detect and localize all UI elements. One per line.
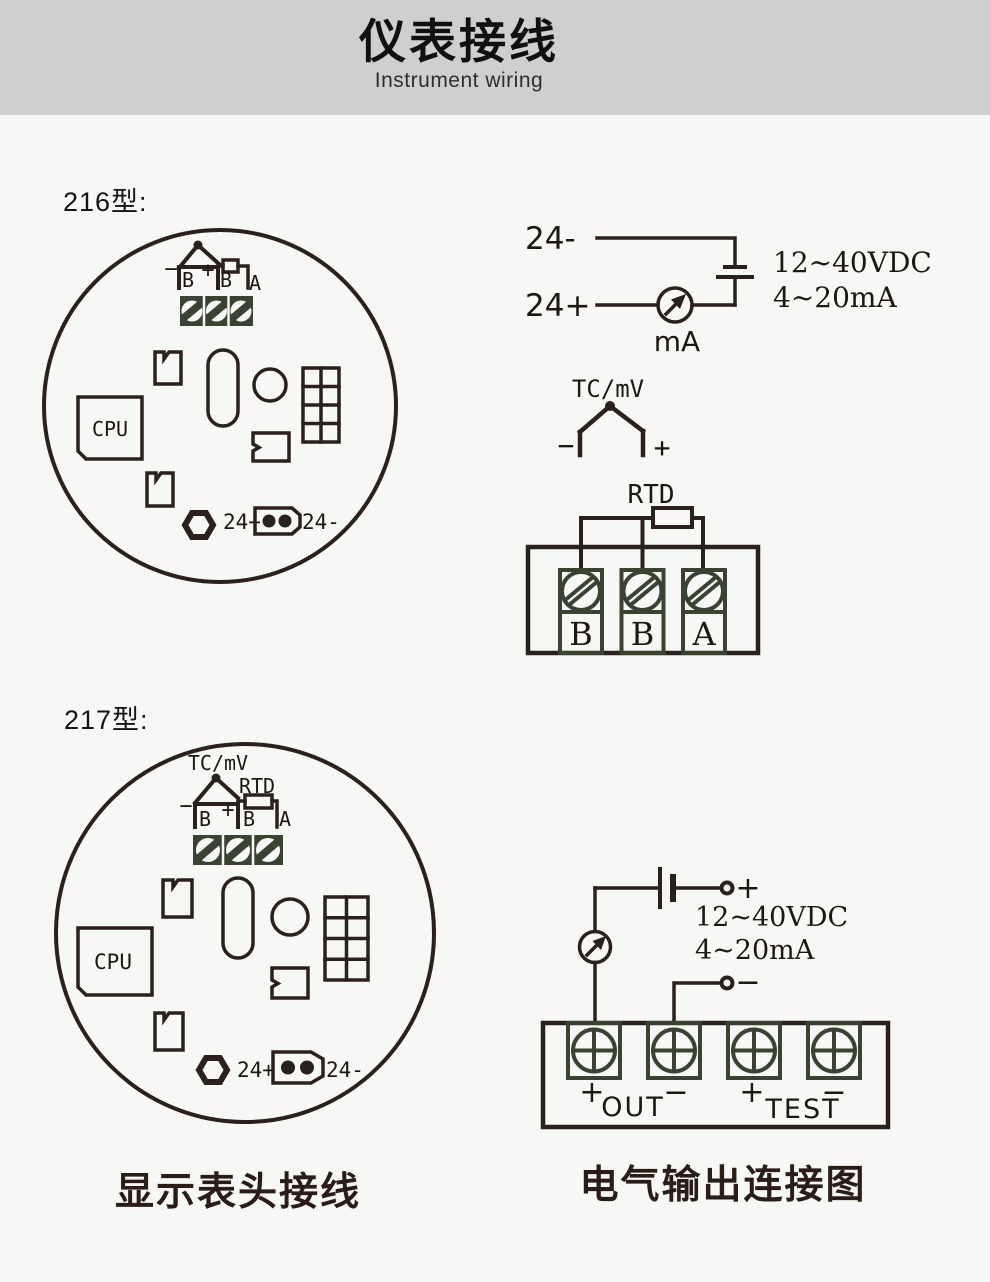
tc-label: TC/mV	[572, 375, 644, 403]
output-screw-terminals	[568, 1023, 860, 1078]
board-216-components: CPU	[78, 350, 339, 537]
board-217-terminal-b1: B	[199, 807, 211, 831]
instrument-wiring-sheet: 仪表接线 Instrument wiring 216型: 217型: − B +…	[0, 0, 990, 1282]
test-minus-label: −	[821, 1075, 846, 1110]
board-217-tc-label: TC/mV	[188, 751, 248, 775]
board-216-24minus: 24-	[302, 510, 340, 534]
output-connection-diagram: + 12~40VDC 4~20mA −	[540, 862, 900, 1137]
rtd-resistor-symbol	[653, 508, 692, 527]
board-217-components: CPU	[78, 878, 368, 1082]
board-217-minus: −	[179, 794, 192, 819]
component-notched-rect-bottom	[147, 473, 173, 506]
board-217-24plus: 24+	[237, 1058, 275, 1082]
board-217-24minus: 24-	[326, 1058, 364, 1082]
component-notched-rect-top	[163, 880, 192, 917]
out-minus-label: −	[663, 1075, 688, 1110]
hex-nut	[199, 1058, 227, 1082]
loop-supply-plus: 24+	[525, 288, 590, 324]
output-wire-to-terminal2	[674, 983, 722, 1023]
page-title: 仪表接线	[359, 16, 559, 68]
component-pill	[223, 878, 253, 958]
loop-supply-minus: 24-	[525, 221, 576, 257]
component-grid	[325, 897, 368, 980]
cpu-label: CPU	[92, 417, 128, 441]
caption-output-wiring: 电气输出连接图	[579, 1154, 866, 1210]
loop-voltage-range: 12~40VDC	[773, 246, 932, 279]
header-band: 仪表接线 Instrument wiring	[0, 0, 990, 115]
header-text: 仪表接线 Instrument wiring	[359, 16, 559, 93]
rtd-diagram: RTD B B A	[520, 478, 770, 660]
component-grid	[303, 368, 339, 442]
rtd-label: RTD	[628, 480, 675, 510]
ammeter-symbol	[580, 932, 611, 963]
output-current-range: 4~20mA	[695, 935, 815, 966]
page-subtitle: Instrument wiring	[359, 69, 559, 93]
tc-mv-diagram: TC/mV − +	[540, 374, 690, 466]
output-voltage-range: 12~40VDC	[695, 902, 848, 933]
board-216-power-connector	[255, 508, 300, 534]
output-supply-plus: +	[735, 871, 760, 906]
board-216-minus: −	[164, 257, 177, 282]
out-label: OUT	[601, 1092, 665, 1123]
loop-current-range: 4~20mA	[773, 281, 897, 314]
board-217-terminal-b2: B	[243, 807, 255, 831]
component-notched-rect-right	[272, 968, 308, 998]
board-217-plus: +	[221, 798, 234, 823]
tc-plus: +	[654, 431, 671, 464]
rtd-terminal-a: A	[691, 615, 716, 653]
thermocouple-symbol	[580, 401, 643, 455]
board-216-terminal-b2: B	[220, 268, 232, 292]
board-217-power-connector	[273, 1052, 323, 1083]
board-217-terminal-a: A	[279, 807, 291, 831]
current-loop-diagram: 24- 24+ mA 12~40VDC 4~20mA	[500, 212, 970, 362]
rtd-terminal-b2: B	[631, 615, 655, 653]
board-diagram-216: − B + B A CPU	[40, 224, 404, 586]
caption-meter-wiring: 显示表头接线	[115, 1161, 361, 1217]
cpu-label: CPU	[94, 950, 132, 974]
output-supply-minus: −	[735, 965, 760, 1000]
component-pill	[208, 350, 238, 426]
board-216-terminal-b1: B	[182, 268, 194, 292]
board-216-terminal-a: A	[249, 271, 261, 295]
component-round	[272, 899, 308, 935]
component-round	[254, 369, 286, 401]
cpu-chip: CPU	[78, 397, 142, 459]
tc-minus: −	[558, 429, 575, 462]
rtd-terminal-b1: B	[569, 615, 593, 653]
model-216-label: 216型:	[63, 180, 148, 219]
model-217-label: 217型:	[64, 698, 149, 737]
board-216-plus: +	[201, 258, 214, 283]
loop-wire-top	[597, 238, 735, 267]
test-plus-label: +	[739, 1075, 764, 1110]
ammeter-symbol	[658, 288, 692, 322]
component-notched-rect-top	[155, 352, 181, 384]
loop-meter-label: mA	[654, 325, 700, 358]
component-notched-rect-bottom	[155, 1013, 183, 1050]
hex-nut	[185, 513, 213, 537]
board-diagram-217: TC/mV RTD − B + B A	[45, 740, 437, 1130]
board-217-terminal-block	[193, 835, 283, 865]
cpu-chip: CPU	[78, 928, 152, 995]
board-216-terminal-block	[180, 296, 253, 326]
component-notched-rect-right	[253, 433, 289, 461]
